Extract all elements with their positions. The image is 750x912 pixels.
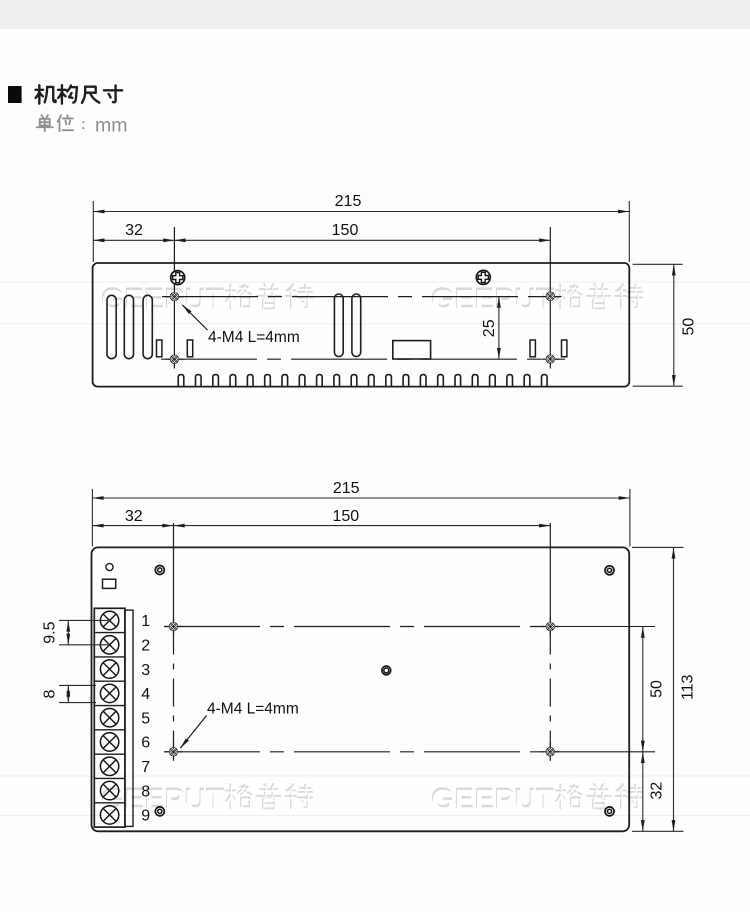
svg-text:3: 3	[141, 662, 150, 679]
svg-text:8: 8	[41, 689, 58, 698]
svg-text:215: 215	[333, 480, 360, 497]
svg-text:2: 2	[141, 637, 150, 654]
svg-text:5: 5	[141, 710, 150, 727]
svg-text:GEEPUT: GEEPUT	[432, 284, 555, 317]
svg-text:4: 4	[141, 686, 150, 703]
svg-text:150: 150	[332, 222, 359, 239]
svg-text:215: 215	[335, 193, 362, 210]
svg-text:9.5: 9.5	[41, 621, 58, 643]
svg-text:25: 25	[481, 319, 498, 337]
svg-text:50: 50	[648, 680, 665, 698]
svg-text:150: 150	[332, 508, 359, 525]
svg-text:9: 9	[141, 808, 150, 825]
svg-text:GEEPUT: GEEPUT	[432, 784, 555, 817]
svg-text:32: 32	[125, 508, 143, 525]
svg-text:1: 1	[141, 613, 150, 630]
svg-text:8: 8	[141, 783, 150, 800]
svg-text:mm: mm	[95, 115, 128, 137]
svg-text:4-M4 L=4mm: 4-M4 L=4mm	[208, 329, 300, 346]
svg-text:32: 32	[125, 222, 143, 239]
svg-text:6: 6	[141, 735, 150, 752]
svg-text:32: 32	[648, 782, 665, 800]
svg-text:GEEPUT: GEEPUT	[102, 784, 225, 817]
svg-text:7: 7	[141, 759, 150, 776]
svg-text:4-M4 L=4mm: 4-M4 L=4mm	[207, 701, 299, 718]
svg-text:GEEPUT: GEEPUT	[102, 284, 225, 317]
svg-text:50: 50	[680, 318, 697, 336]
svg-text:113: 113	[679, 674, 696, 700]
